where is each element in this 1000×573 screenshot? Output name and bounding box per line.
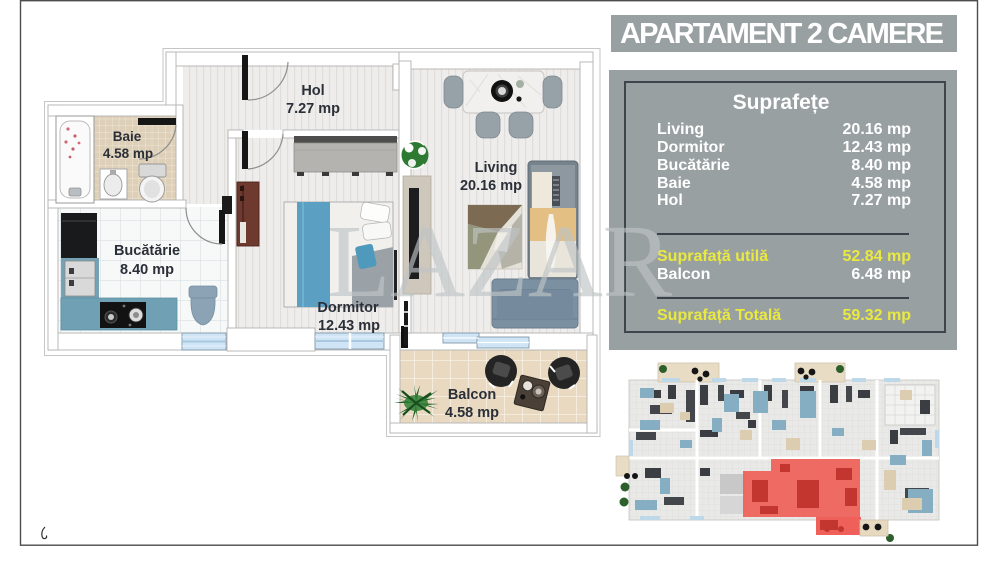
svg-text:12.43 mp: 12.43 mp xyxy=(843,139,912,156)
svg-text:Living: Living xyxy=(475,160,518,176)
svg-text:7.27 mp: 7.27 mp xyxy=(851,192,911,209)
svg-text:Balcon: Balcon xyxy=(448,387,496,403)
svg-text:7.27 mp: 7.27 mp xyxy=(286,101,340,117)
svg-text:Dormitor: Dormitor xyxy=(657,139,725,156)
svg-text:4.58 mp: 4.58 mp xyxy=(445,405,499,421)
svg-text:4.58 mp: 4.58 mp xyxy=(851,175,911,192)
svg-text:Suprafață Totală: Suprafață Totală xyxy=(657,307,781,324)
svg-text:Suprafață utilă: Suprafață utilă xyxy=(657,248,768,265)
svg-text:20.16 mp: 20.16 mp xyxy=(460,178,522,194)
svg-text:Bucătărie: Bucătărie xyxy=(114,243,180,259)
svg-text:LAZAR: LAZAR xyxy=(327,204,673,319)
svg-text:20.16 mp: 20.16 mp xyxy=(843,121,912,138)
svg-text:12.43 mp: 12.43 mp xyxy=(318,318,380,334)
svg-text:APARTAMENT 2 CAMERE: APARTAMENT 2 CAMERE xyxy=(620,18,944,50)
svg-text:59.32 mp: 59.32 mp xyxy=(843,307,912,324)
svg-text:Bucătărie: Bucătărie xyxy=(657,157,730,174)
svg-text:Living: Living xyxy=(657,121,704,138)
svg-text:52.84 mp: 52.84 mp xyxy=(843,248,912,265)
svg-text:Baie: Baie xyxy=(113,129,142,144)
svg-text:Suprafețe: Suprafețe xyxy=(733,91,830,114)
svg-text:8.40 mp: 8.40 mp xyxy=(120,262,174,278)
svg-text:8.40 mp: 8.40 mp xyxy=(851,157,911,174)
svg-text:Baie: Baie xyxy=(657,175,691,192)
svg-text:Hol: Hol xyxy=(301,83,324,99)
svg-text:6.48 mp: 6.48 mp xyxy=(851,266,911,283)
svg-text:4.58 mp: 4.58 mp xyxy=(103,146,153,161)
